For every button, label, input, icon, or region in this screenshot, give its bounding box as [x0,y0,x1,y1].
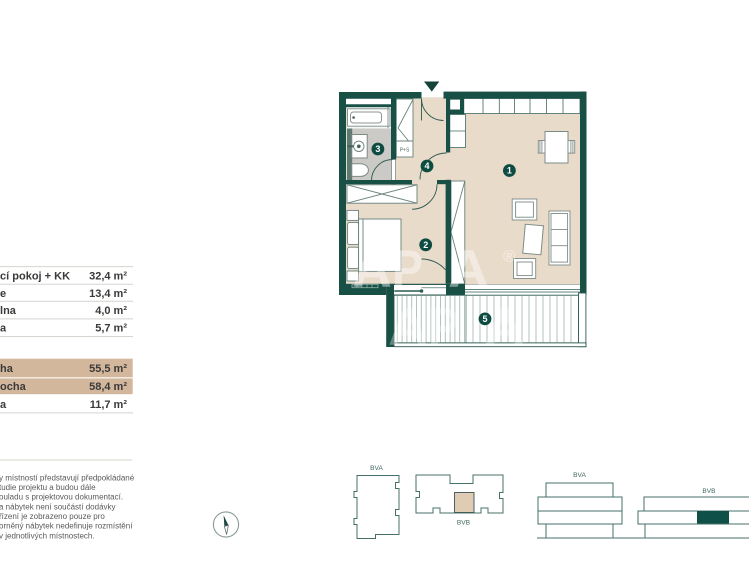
svg-text:y místností představují předpo: y místností představují předpokládané [0,473,135,482]
svg-text:4: 4 [424,161,429,171]
svg-text:Ložnice: Ložnice [0,288,6,300]
svg-text:58,4 m²: 58,4 m² [89,381,127,393]
svg-text:BVA: BVA [370,465,383,472]
svg-text:A: A [352,240,392,299]
svg-text:BVB: BVB [457,520,471,527]
svg-text:13,4 m²: 13,4 m² [89,288,127,300]
svg-text:Podlahová plocha: Podlahová plocha [0,363,14,375]
svg-text:P: P [392,240,423,299]
svg-text:BVA: BVA [573,472,586,479]
svg-text:32,4 m²: 32,4 m² [89,271,127,283]
svg-text:5: 5 [482,314,487,324]
svg-text:P: P [428,298,459,357]
svg-text:řízení je zobrazeno pouze pro: řízení je zobrazeno pouze pro [0,512,105,521]
svg-text:A: A [448,240,489,299]
svg-text:2: 2 [423,240,428,250]
svg-text:Obývací pokoj + KK: Obývací pokoj + KK [0,271,70,283]
svg-text:11,7 m²: 11,7 m² [90,399,128,411]
svg-text:v jednotlivých místnostech.: v jednotlivých místnostech. [0,531,95,540]
svg-text:A: A [484,298,525,357]
svg-text:Chodba: Chodba [0,323,7,335]
svg-text:P+S: P+S [400,148,410,154]
svg-text:A: A [388,298,428,357]
svg-text:5,7 m²: 5,7 m² [95,323,127,335]
svg-text:Koupelna: Koupelna [0,305,17,317]
svg-text:Terasa: Terasa [0,399,7,411]
svg-text:55,5 m²: 55,5 m² [89,363,127,375]
svg-text:a nábytek není součástí dodávk: a nábytek není součástí dodávky [0,502,116,511]
svg-text:Celková plocha: Celková plocha [0,381,27,393]
svg-text:4,0 m²: 4,0 m² [95,305,127,317]
svg-text:BVB: BVB [702,488,716,495]
svg-text:1: 1 [507,166,512,176]
svg-text:ouladu s projektovou dokumenta: ouladu s projektovou dokumentací. [0,493,123,502]
svg-text:3: 3 [375,144,380,154]
svg-text:®: ® [503,247,516,266]
svg-text:tudie projektu a budou dále: tudie projektu a budou dále [0,483,96,492]
svg-text:orněný nábytek nedefinuje rozm: orněný nábytek nedefinuje rozmístění [0,522,133,531]
